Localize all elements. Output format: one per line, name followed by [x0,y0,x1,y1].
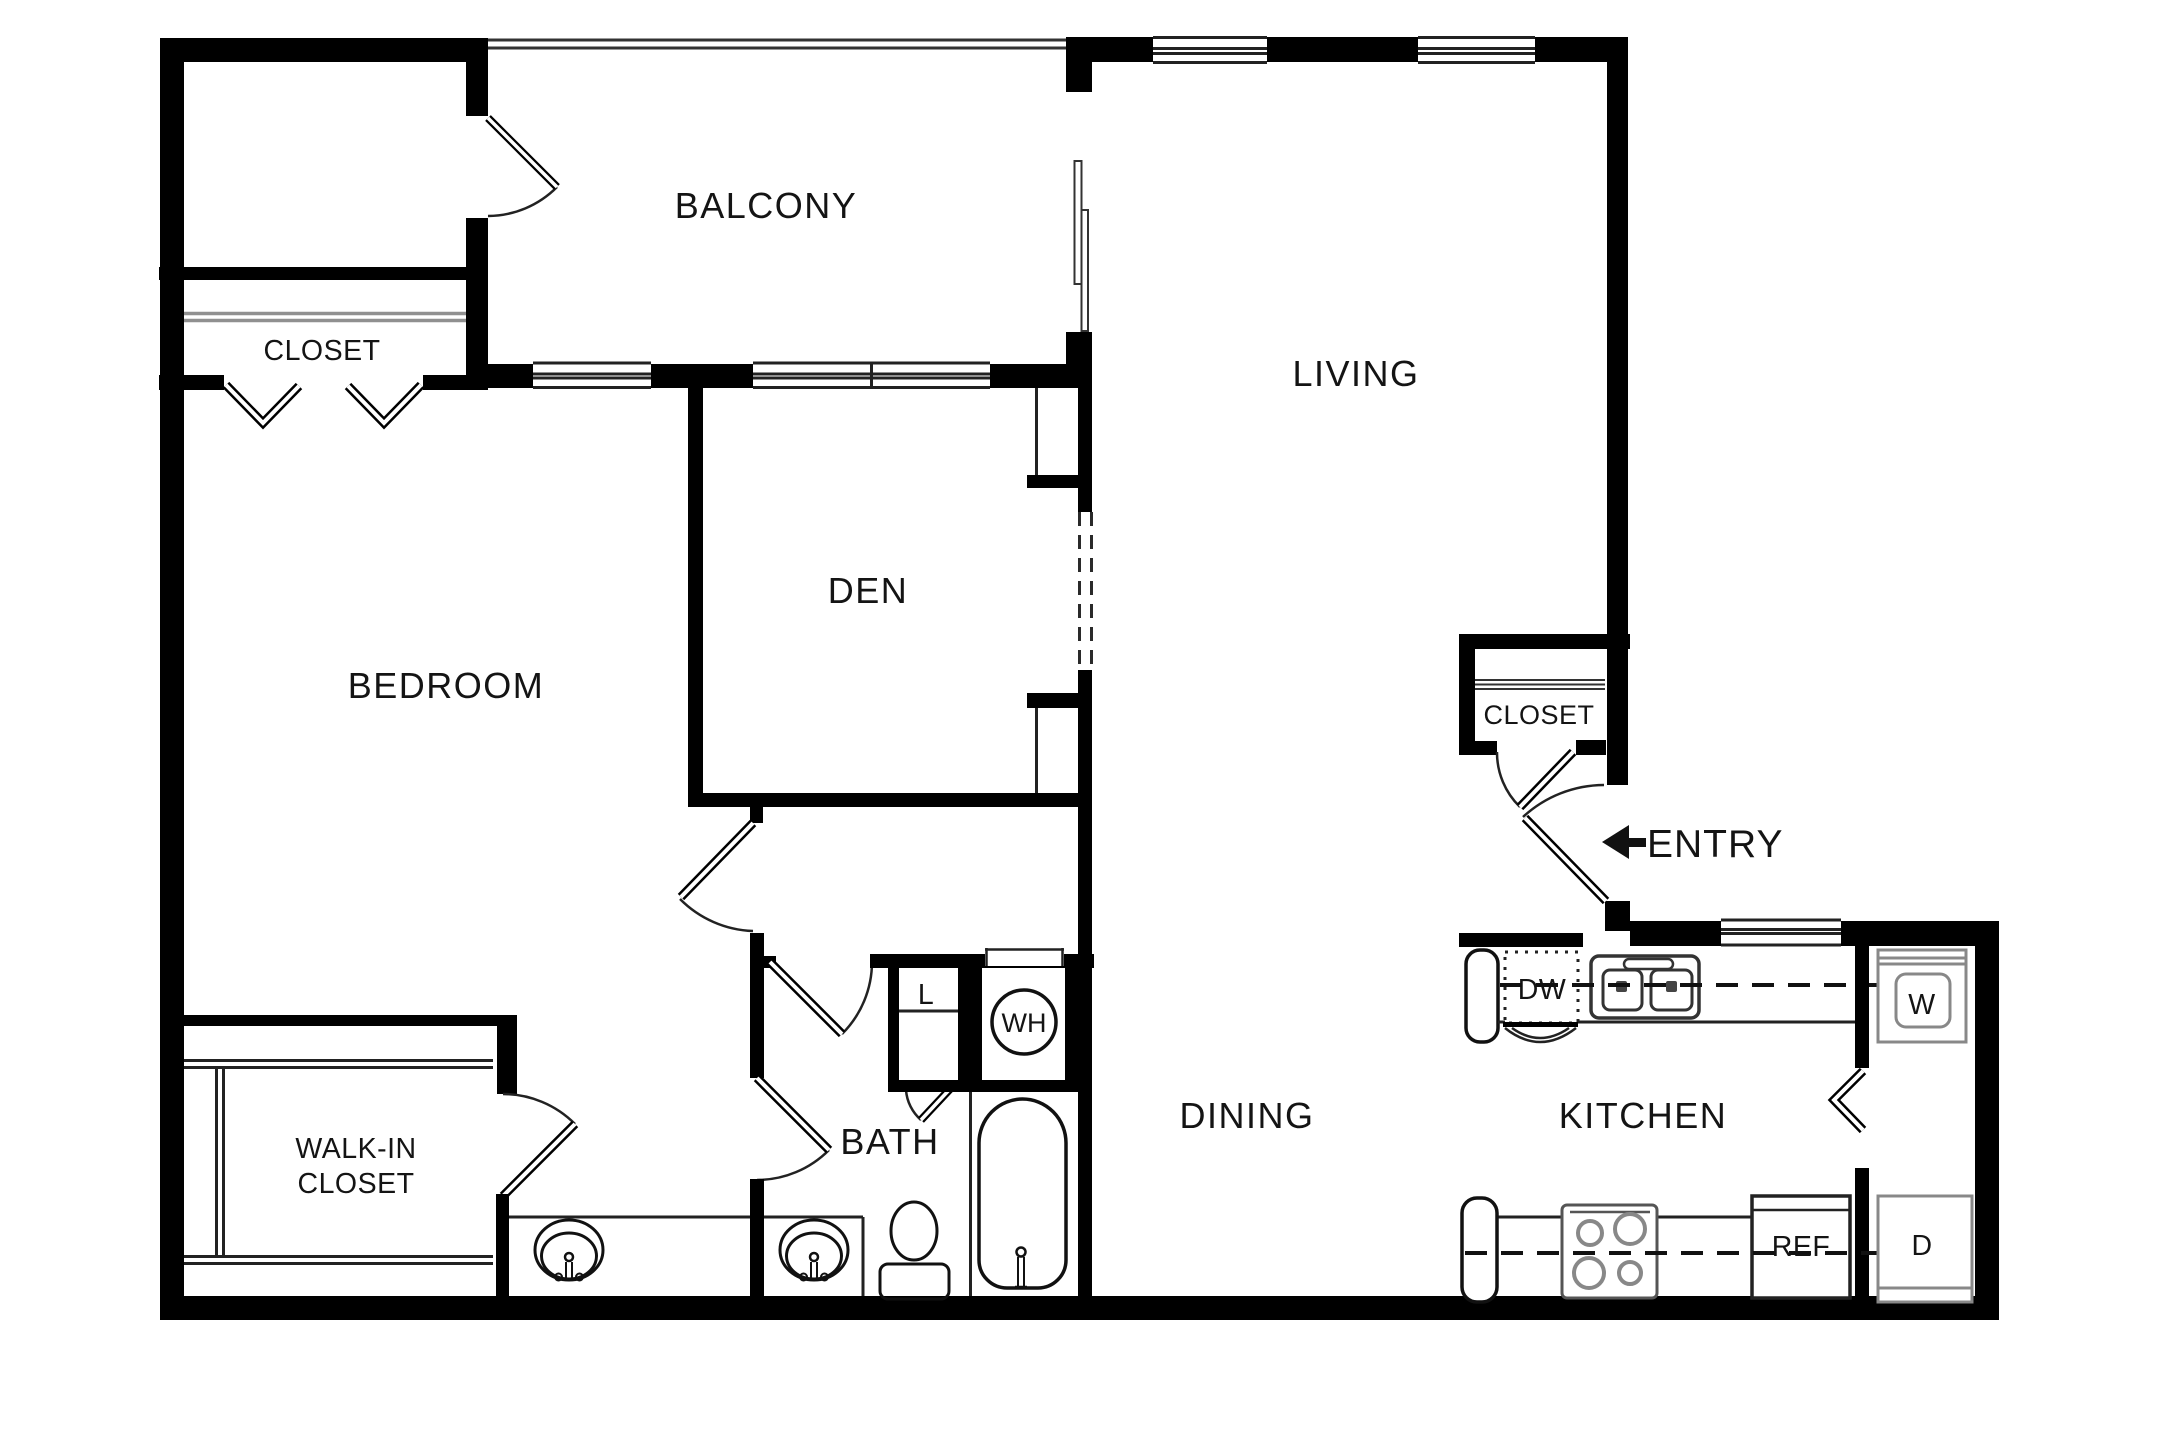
svg-text:DINING: DINING [1180,1095,1315,1136]
svg-text:BATH: BATH [840,1121,939,1162]
svg-text:CLOSET: CLOSET [1483,700,1594,730]
svg-text:DW: DW [1518,974,1566,1006]
svg-text:ENTRY: ENTRY [1647,823,1783,866]
svg-text:BALCONY: BALCONY [675,185,858,226]
svg-text:DEN: DEN [828,570,909,611]
svg-text:BEDROOM: BEDROOM [348,665,545,706]
svg-text:CLOSET: CLOSET [263,335,380,367]
svg-text:LIVING: LIVING [1292,353,1419,394]
svg-text:WH: WH [1002,1008,1047,1038]
svg-text:REF: REF [1772,1231,1831,1263]
svg-text:KITCHEN: KITCHEN [1559,1095,1728,1136]
svg-text:W: W [1908,989,1935,1021]
svg-text:WALK-IN: WALK-IN [295,1133,416,1165]
svg-text:D: D [1911,1230,1932,1262]
svg-text:CLOSET: CLOSET [297,1168,414,1200]
svg-text:L: L [918,979,934,1011]
